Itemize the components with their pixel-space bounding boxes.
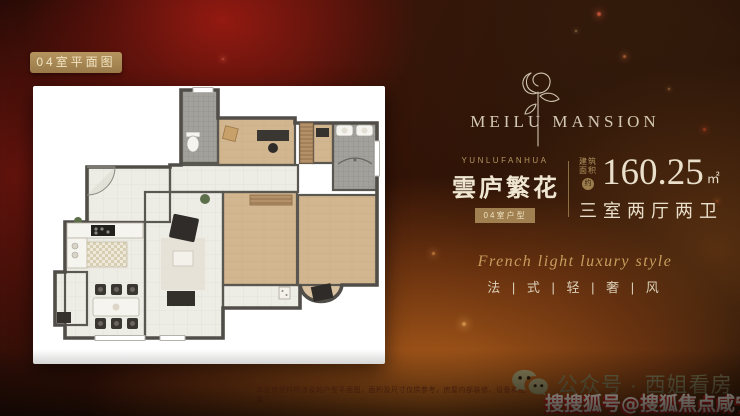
wechat-icon — [511, 368, 549, 400]
bokeh-dot — [623, 55, 626, 58]
promo-image: 04室平面图 — [0, 0, 740, 416]
bokeh-dot — [222, 58, 224, 60]
sohu-watermark: 搜搜狐号@搜狐焦点咸宁站 — [545, 389, 740, 416]
bokeh-dot — [668, 88, 670, 90]
floorplan-svg — [33, 86, 385, 364]
unit-type-badge: 04室户型 — [475, 208, 536, 223]
bokeh-dot — [432, 252, 435, 255]
floorplan-tab-badge: 04室平面图 — [30, 52, 122, 73]
vertical-divider — [568, 161, 569, 217]
area-approx-circle: 约 — [582, 178, 594, 190]
bokeh-dot — [703, 128, 706, 131]
area-label-line2: 面积 — [579, 166, 597, 175]
tagline-en: French light luxury style — [468, 253, 682, 271]
tagline-cn: 法 | 式 | 轻 | 奢 | 风 — [468, 277, 682, 296]
bokeh-dot — [597, 12, 601, 16]
room-layout: 三室两厅两卫 — [579, 197, 730, 223]
bokeh-dot — [462, 322, 466, 326]
area-value: 160.25 — [602, 155, 704, 191]
project-name-cn: 雲庐繁花 — [452, 168, 558, 203]
brand-name: MEILU MANSION — [448, 112, 682, 132]
rose-icon — [512, 64, 564, 148]
disclaimer-text: 本宣传资料所涉及的户型平面图，面积及尺寸仅供参考，房屋内部装修、设备和配置 — [256, 385, 528, 405]
listing-info: YUNLUFANHUA 雲庐繁花 04室户型 建筑 面积 约 160.25 ㎡ … — [452, 155, 730, 223]
floorplan-image — [33, 86, 385, 364]
project-name-en: YUNLUFANHUA — [452, 156, 558, 165]
area-unit: ㎡ — [707, 168, 720, 191]
area-label-line1: 建筑 — [579, 157, 597, 166]
bokeh-dot — [575, 30, 577, 32]
